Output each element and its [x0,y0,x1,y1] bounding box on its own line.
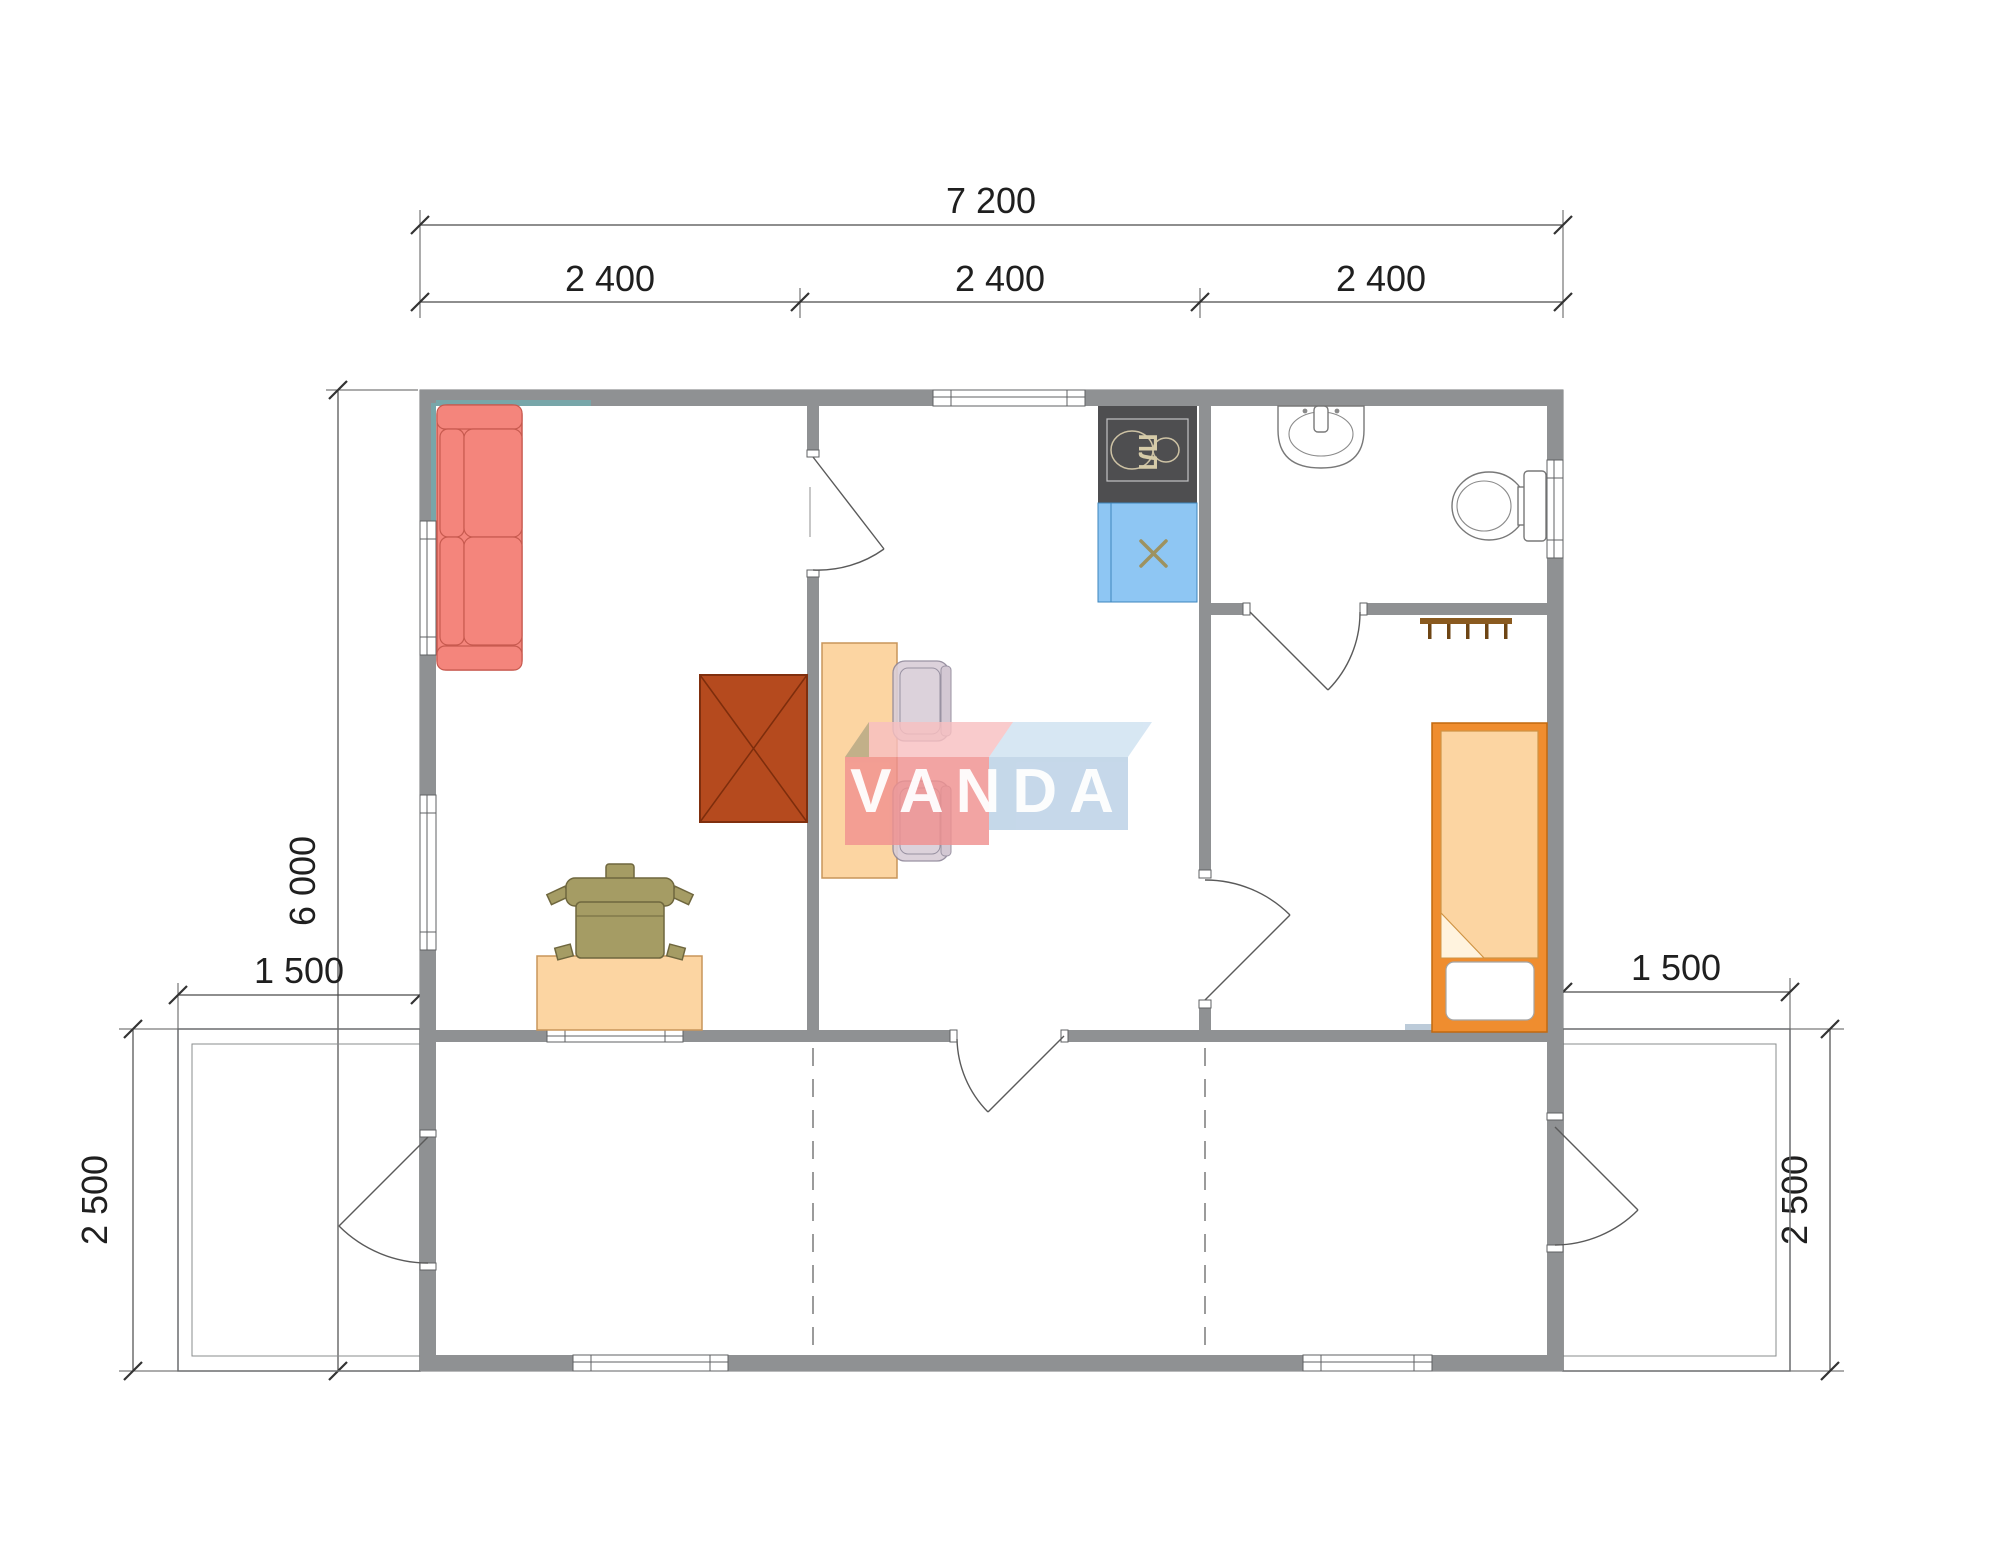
wall-hall-north-1 [436,1030,547,1042]
wall-bathroom-south-right [1367,603,1547,615]
terrace-left-deck-line [192,1044,420,1356]
door-dining-bedroom [1199,870,1290,1008]
wardrobe [700,675,807,822]
sofa [437,405,522,670]
sofa-cushion [464,429,522,537]
dim-text-module-3: 2 400 [1336,258,1426,299]
dim-text-terrace-left-width: 1 500 [254,950,344,991]
sofa-backrest [440,429,464,537]
window-west-1 [420,521,436,655]
bed [1432,723,1547,1032]
dim-text-terrace-right-width: 1 500 [1631,947,1721,988]
sofa-armrest-bottom [437,646,522,670]
wall-living-dining-upper [807,406,819,450]
desk [537,956,702,1030]
window-east-bathroom [1547,460,1563,558]
dim-text-total-width: 7 200 [946,180,1036,221]
dim-text-terrace-right-depth: 2 500 [1774,1155,1815,1245]
dim-text-height: 6 000 [282,836,323,926]
terrace-right [1563,1029,1790,1371]
floor-plan-canvas: 7 200 2 400 2 400 2 400 6 000 1 500 1 50… [0,0,2000,1563]
floor-plan-page: 7 200 2 400 2 400 2 400 6 000 1 500 1 50… [0,0,2000,1563]
bed-pillow [1446,962,1534,1020]
door-bathroom [1243,603,1367,690]
door-living-dining [807,450,884,577]
window-west-2 [420,795,436,950]
dim-text-module-1: 2 400 [565,258,655,299]
dim-text-terrace-left-depth: 2 500 [74,1155,115,1245]
stove-label: ПЛ [1133,434,1163,471]
sofa-backrest [440,537,464,645]
dim-text-module-2: 2 400 [955,258,1045,299]
desk-chair [547,864,693,960]
window-south-2 [1303,1355,1432,1371]
wall-living-dining-lower [807,577,819,1030]
toilet-symbol [1452,471,1546,541]
terrace-left [178,1029,420,1371]
stove-symbol: ПЛ [1098,406,1197,503]
terrace-right-outline [1563,1029,1790,1371]
sofa-cushion [464,537,522,645]
bed-blanket [1441,731,1538,958]
window-interior-hall [547,1030,683,1042]
vanda-watermark-text: VANDA [850,757,1126,826]
sofa-armrest-top [437,405,522,429]
coat-rack-symbol [1420,618,1512,639]
wall-bathroom-south-left [1211,603,1243,615]
kitchen-sink-symbol [1098,503,1197,602]
sofa-wall-shadow-left [431,403,436,523]
window-north-kitchen [933,390,1085,406]
terrace-right-deck-line [1563,1044,1776,1356]
door-dining-hall [950,1030,1068,1112]
washbasin-symbol [1278,406,1364,468]
wall-dining-bedroom-upper [1199,406,1211,870]
wall-hall-north-2 [683,1030,950,1042]
window-south-1 [573,1355,728,1371]
terrace-left-outline [178,1029,420,1371]
